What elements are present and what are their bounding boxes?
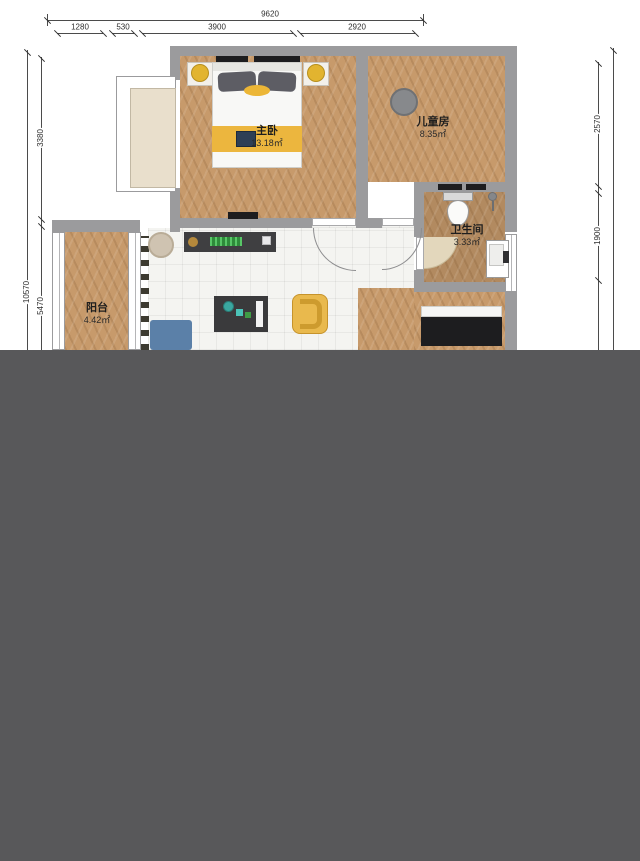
washbasin-tap xyxy=(503,251,509,263)
room-balcony-floor xyxy=(65,232,128,350)
nightstand-lamp-icon xyxy=(191,64,209,82)
room-name: 卫生间 xyxy=(427,224,507,237)
room-area: 4.42㎡ xyxy=(62,315,132,326)
wall-balcony-top xyxy=(52,220,140,232)
dim-label: 2570 xyxy=(594,114,602,134)
window-balcony-living xyxy=(128,232,141,350)
pillow-yellow xyxy=(244,85,270,96)
desk-plate xyxy=(223,301,234,312)
plant-screen xyxy=(141,236,149,350)
dim-line-seg xyxy=(57,33,103,34)
dim-label: 530 xyxy=(115,24,130,32)
decor-speaker xyxy=(262,236,271,245)
bath-wall-cabinet xyxy=(466,184,486,190)
wall-top xyxy=(170,46,515,56)
dim-line-left-total xyxy=(27,50,28,350)
nightstand-lamp-icon xyxy=(307,64,325,82)
master-door-leaf xyxy=(312,218,356,226)
hall-door-leaf xyxy=(382,218,414,226)
wall-master-living xyxy=(170,218,312,228)
dim-line-seg xyxy=(142,33,293,34)
bay-window-sill xyxy=(130,88,176,188)
dim-label: 3380 xyxy=(37,128,45,148)
room-label-kids: 儿童房 8.35㎡ xyxy=(393,116,473,140)
bed2-mattress xyxy=(421,317,502,346)
round-rug xyxy=(390,88,418,116)
room-label-balcony: 阳台 4.42㎡ xyxy=(62,302,132,326)
room-label-bathroom: 卫生间 3.33㎡ xyxy=(427,224,507,248)
wall-kids-bath-divider xyxy=(414,182,515,192)
wall-right-lower xyxy=(505,292,517,350)
window-glass-line xyxy=(135,233,136,349)
room-label-master: 主卧 13.18㎡ xyxy=(222,125,312,149)
wall-hall-pier xyxy=(356,218,382,228)
side-table-round xyxy=(148,232,174,258)
dim-label: 3900 xyxy=(207,24,227,32)
bed2-pillow-band xyxy=(421,306,502,317)
dim-line-right-total xyxy=(613,48,614,350)
dim-line-seg xyxy=(598,62,599,350)
desk-item xyxy=(236,309,243,316)
gray-overlay xyxy=(0,350,640,861)
dim-label: 5470 xyxy=(37,296,45,316)
floor-plan-canvas: 9620 1280 530 3900 2920 10570 3380 5470 … xyxy=(0,0,640,861)
desk-keyboard xyxy=(256,301,263,327)
window-glass-line xyxy=(59,233,60,349)
dim-label: 1900 xyxy=(594,226,602,246)
room-area: 8.35㎡ xyxy=(393,129,473,140)
wall-bath-left-lower xyxy=(414,270,424,282)
shower-pipe xyxy=(492,201,494,211)
decor-gold-bowl xyxy=(188,237,198,247)
room-area: 13.18㎡ xyxy=(222,138,312,149)
desk-item xyxy=(245,312,251,318)
wall-right-upper xyxy=(505,46,517,232)
dim-line-seg xyxy=(112,33,134,34)
plant-row xyxy=(210,237,242,246)
dim-line-seg xyxy=(300,33,415,34)
dim-label-left-total: 10570 xyxy=(23,280,31,304)
bed-headboard xyxy=(213,63,301,71)
window-balcony-left xyxy=(52,232,65,350)
dim-label-top-total: 9620 xyxy=(260,11,280,19)
armchair-backrest xyxy=(300,299,322,329)
entry-wood-floor xyxy=(358,288,414,350)
room-area: 3.33㎡ xyxy=(427,237,507,248)
window-glass-line xyxy=(511,235,512,291)
dim-label: 1280 xyxy=(70,24,90,32)
wall-master-kids-divider xyxy=(356,46,368,228)
bath-wall-cabinet xyxy=(438,184,462,190)
wall-master-left-upper xyxy=(170,46,180,80)
dim-label: 2920 xyxy=(347,24,367,32)
bench-blue xyxy=(150,320,192,350)
dim-line-top-total xyxy=(47,20,423,21)
bedroom-door-track xyxy=(228,212,258,219)
room-name: 主卧 xyxy=(222,125,312,138)
shower-head-icon xyxy=(488,192,497,201)
wall-bath-bottom xyxy=(414,282,515,292)
room-name: 儿童房 xyxy=(393,116,473,129)
room-name: 阳台 xyxy=(62,302,132,315)
